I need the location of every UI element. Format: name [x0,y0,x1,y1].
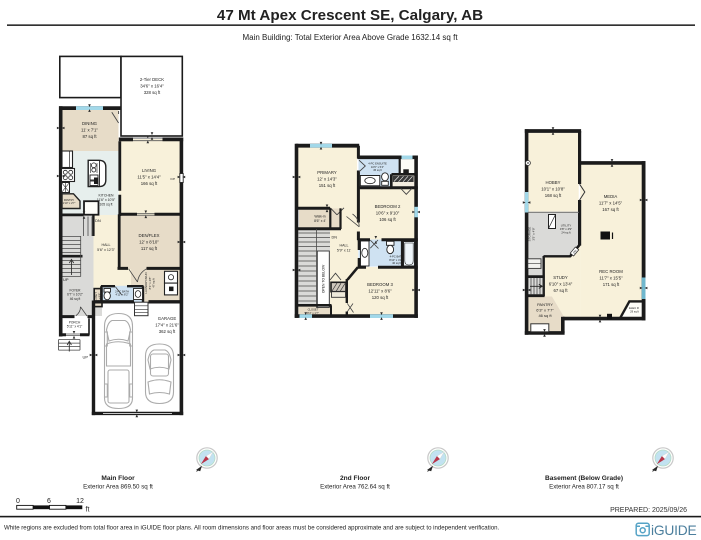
svg-text:11'7" x 15'5": 11'7" x 15'5" [599,276,623,281]
svg-text:5'6" x 12'3": 5'6" x 12'3" [97,248,115,252]
svg-text:PANTRY: PANTRY [537,302,553,307]
svg-text:328 sq ft: 328 sq ft [144,90,161,95]
svg-text:11'7" x 14'5": 11'7" x 14'5" [599,201,623,206]
svg-text:ELEC R: ELEC R [629,306,639,310]
svg-text:6'10" x 13'4": 6'10" x 13'4" [549,282,573,287]
svg-text:17'4" x 21'6": 17'4" x 21'6" [155,323,179,328]
svg-text:2' x 8'6": 2' x 8'6" [97,293,101,302]
svg-text:Walk-in: Walk-in [314,215,325,219]
svg-text:106 sq ft: 106 sq ft [379,217,396,222]
svg-text:HOBBY: HOBBY [545,180,560,185]
svg-text:iGUIDE: iGUIDE [651,523,697,538]
svg-text:Exterior Area 807.17 sq ft: Exterior Area 807.17 sq ft [549,484,619,491]
svg-text:6'3" x 7'7": 6'3" x 7'7" [536,308,554,313]
svg-text:2nd Floor: 2nd Floor [340,475,370,482]
svg-text:10'1" x 10'8": 10'1" x 10'8" [541,187,565,192]
svg-text:12: 12 [76,498,84,505]
svg-text:BEDROOM 3: BEDROOM 3 [367,282,393,287]
svg-text:Exterior Area 762.64 sq ft: Exterior Area 762.64 sq ft [320,484,390,491]
svg-text:10'6" x 9'10": 10'6" x 9'10" [376,211,400,216]
svg-text:171 sq ft: 171 sq ft [603,282,620,287]
svg-text:PREPARED: 2025/09/26: PREPARED: 2025/09/26 [610,507,687,514]
svg-text:45 sq ft: 45 sq ft [373,168,382,172]
svg-text:BEDROOM 2: BEDROOM 2 [375,204,401,209]
svg-text:5'9" x 11': 5'9" x 11' [337,248,351,252]
svg-text:OPEN TO BELOW: OPEN TO BELOW [322,264,326,293]
svg-text:168 sq ft: 168 sq ft [545,193,562,198]
svg-text:1'10" x 2'7": 1'10" x 2'7" [63,201,76,205]
svg-text:Exterior Area 869.50 sq ft: Exterior Area 869.50 sq ft [83,484,153,491]
svg-text:8'6" x 4': 8'6" x 4' [314,219,326,223]
svg-text:Main Building: Total Exterior: Main Building: Total Exterior Area Above… [242,33,458,42]
svg-text:40 sq ft: 40 sq ft [392,261,401,265]
svg-text:DN: DN [95,218,101,223]
svg-text:8'4" x 1'7": 8'4" x 1'7" [307,311,319,315]
svg-text:White regions are excluded fro: White regions are excluded from total fl… [4,525,500,532]
svg-text:117 sq ft: 117 sq ft [141,246,158,251]
svg-text:3'5" x 4'9": 3'5" x 4'9" [532,227,536,240]
svg-text:4'11" x 8'2": 4'11" x 8'2" [115,293,128,297]
svg-text:46 sq ft: 46 sq ft [538,313,552,318]
svg-text:0: 0 [16,498,20,505]
svg-text:6: 6 [47,498,51,505]
svg-text:PRIMARY: PRIMARY [317,170,337,175]
svg-text:12' x 14'3": 12' x 14'3" [317,177,337,182]
svg-text:105 sq ft: 105 sq ft [99,203,112,207]
svg-text:GARAGE: GARAGE [158,316,177,321]
svg-text:34'6" x 16'4": 34'6" x 16'4" [140,84,164,89]
svg-text:12'11" x 8'6": 12'11" x 8'6" [368,289,392,294]
svg-text:47 sq ft: 47 sq ft [152,278,156,288]
svg-text:167 sq ft: 167 sq ft [602,207,619,212]
svg-text:11'5" x 14'4": 11'5" x 14'4" [137,175,161,180]
svg-text:Basement (Below Grade): Basement (Below Grade) [545,475,623,482]
svg-text:362 sq ft: 362 sq ft [159,329,176,334]
svg-text:46 sq ft: 46 sq ft [70,297,81,301]
svg-text:F/P: F/P [171,177,176,181]
svg-text:11'6" x 10'5": 11'6" x 10'5" [97,198,116,202]
svg-text:HALL: HALL [102,243,111,247]
svg-text:DINING: DINING [82,121,98,126]
svg-text:HALL: HALL [340,244,349,248]
svg-text:REC ROOM: REC ROOM [599,269,623,274]
svg-text:166 sq ft: 166 sq ft [141,181,158,186]
svg-text:24 sq ft: 24 sq ft [561,231,570,235]
svg-text:11' x 7'1": 11' x 7'1" [81,128,98,133]
svg-text:DN: DN [332,236,338,240]
svg-text:151 sq ft: 151 sq ft [319,183,336,188]
svg-text:120 sq ft: 120 sq ft [372,295,389,300]
svg-text:UP: UP [83,355,89,360]
svg-text:29 sq ft: 29 sq ft [630,310,639,314]
svg-text:67 sq ft: 67 sq ft [553,288,568,293]
svg-text:UP: UP [63,277,69,282]
svg-text:STUDY: STUDY [553,275,568,280]
svg-text:5'11" x 4'1": 5'11" x 4'1" [67,325,82,329]
svg-text:MEDIA: MEDIA [604,194,618,199]
svg-text:Main Floor: Main Floor [101,475,135,482]
svg-text:12' x 8'10": 12' x 8'10" [139,240,159,245]
svg-text:LIVING: LIVING [142,168,157,173]
svg-text:ft: ft [86,507,90,514]
svg-text:DEN/FLEX: DEN/FLEX [138,233,159,238]
svg-text:2-Tier DECK: 2-Tier DECK [140,77,164,82]
svg-text:87 sq ft: 87 sq ft [82,134,97,139]
svg-text:KITCHEN: KITCHEN [99,194,114,198]
svg-text:47 Mt Apex Crescent SE, Calgar: 47 Mt Apex Crescent SE, Calgary, AB [217,7,483,24]
